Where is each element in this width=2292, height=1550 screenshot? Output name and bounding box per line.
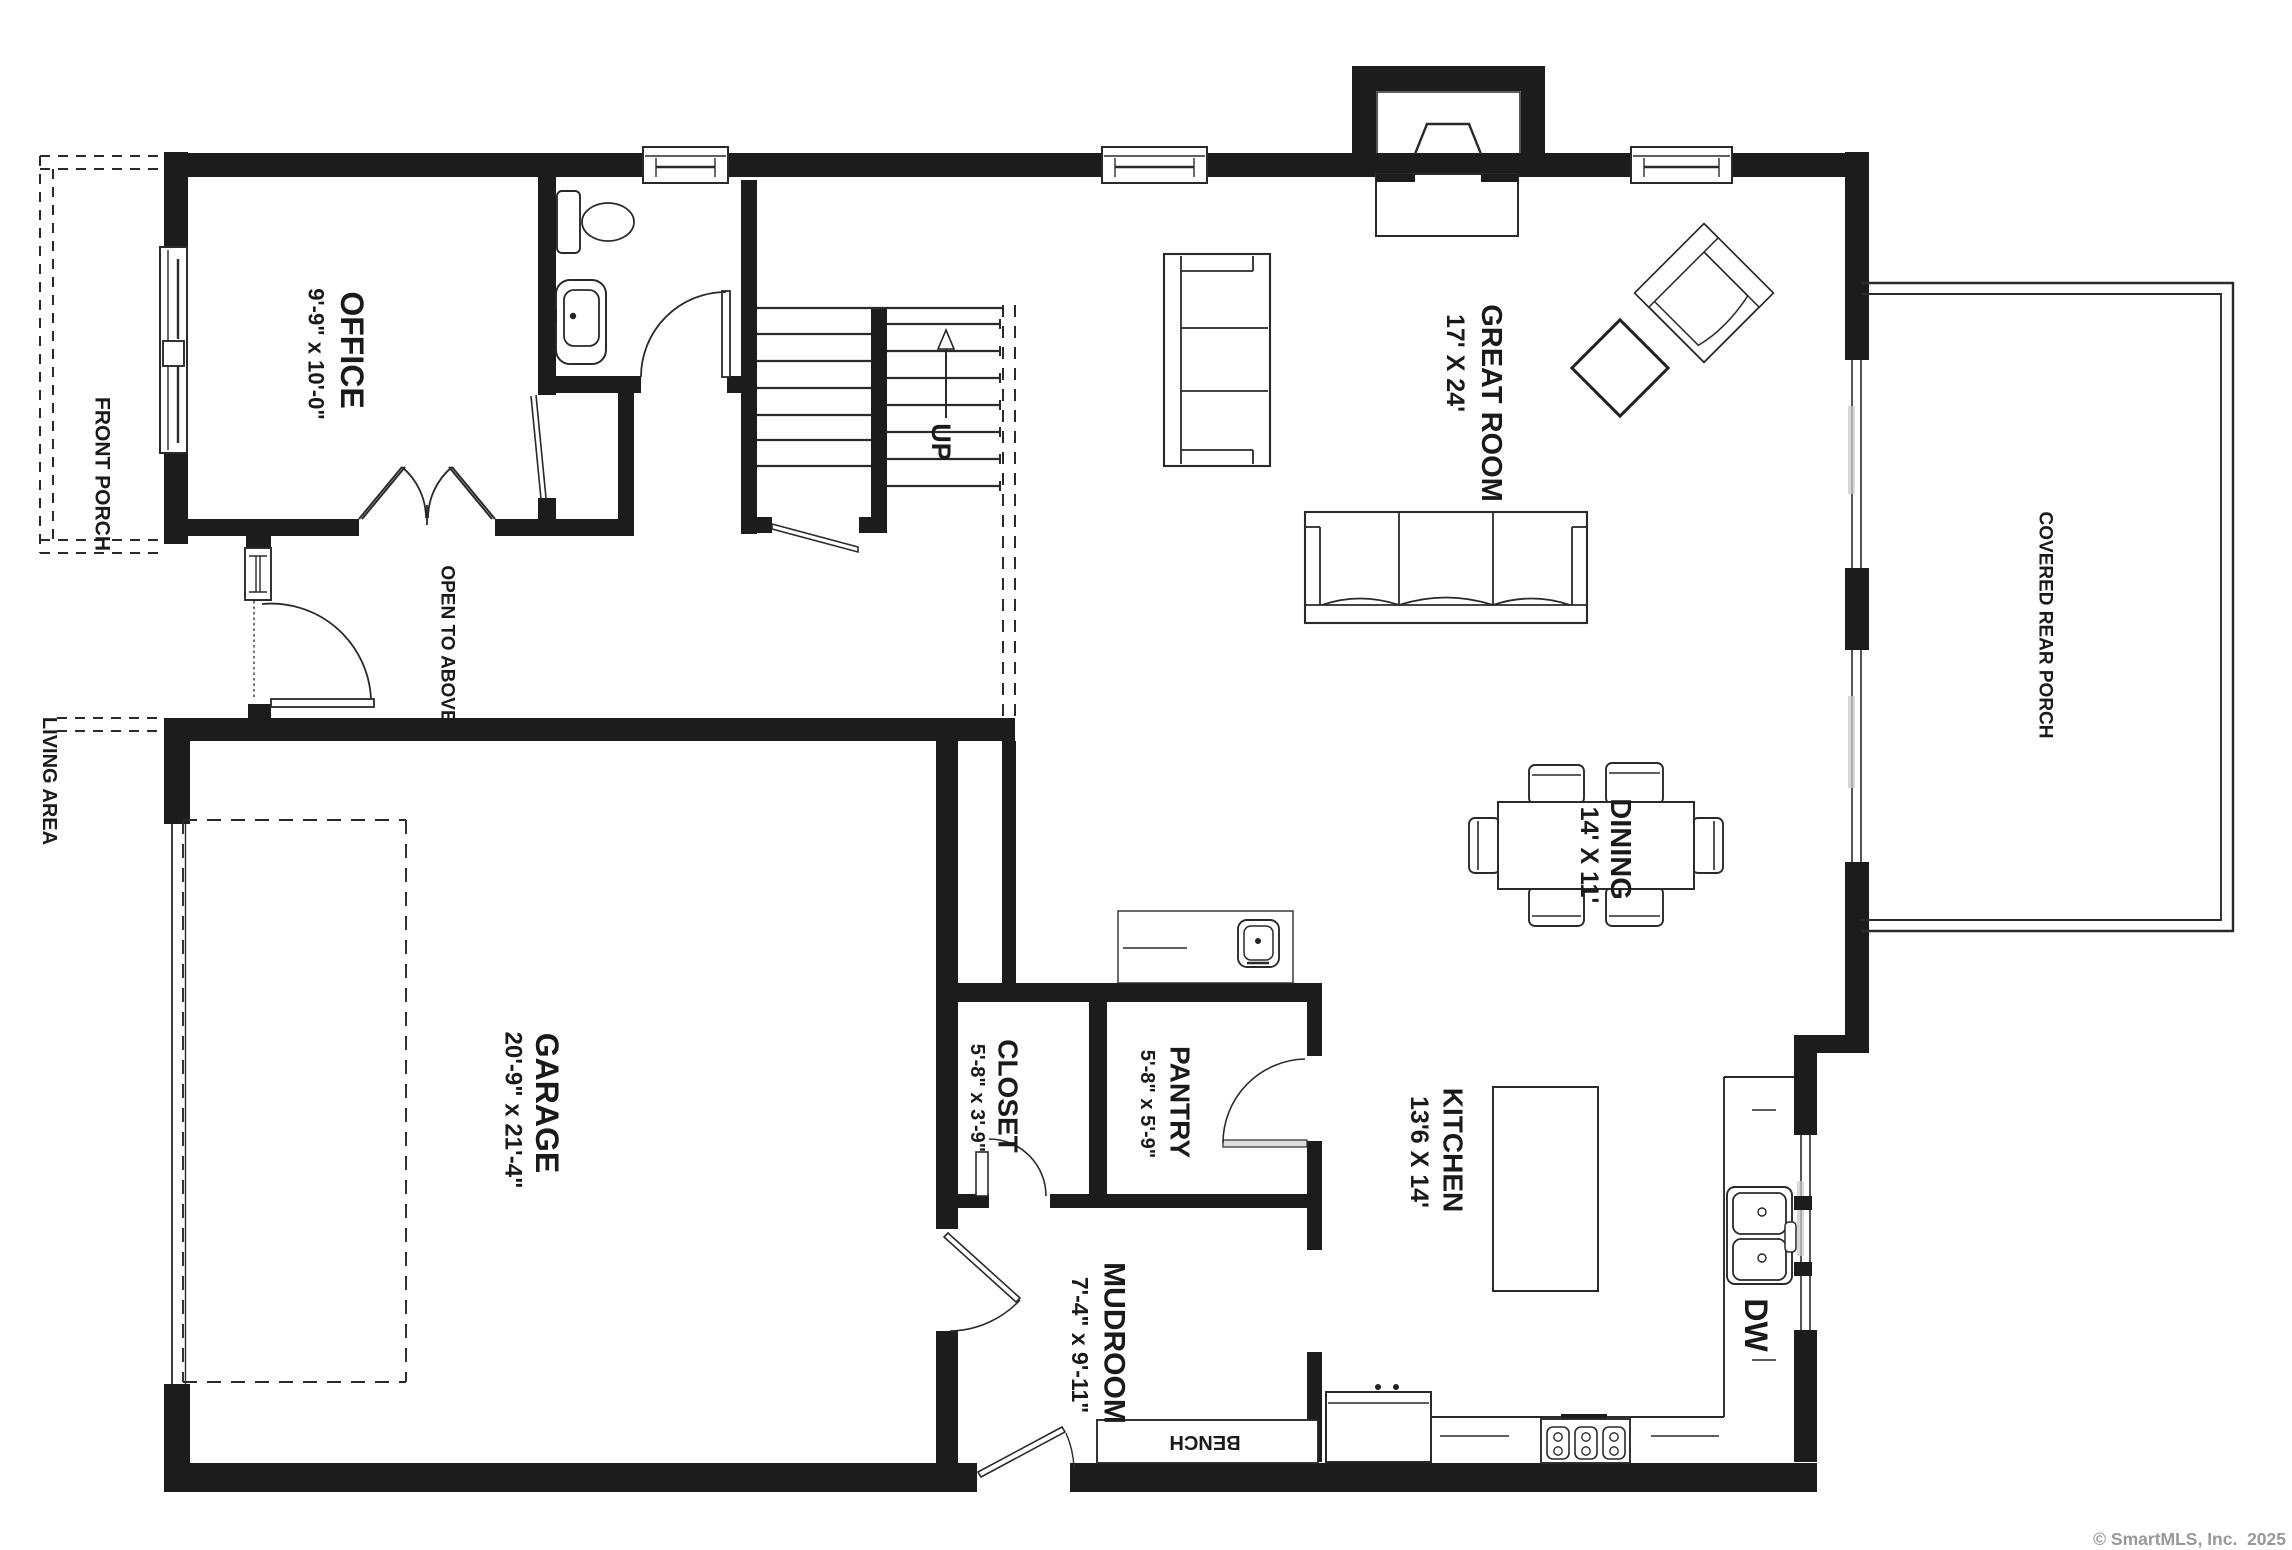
- svg-text:GREAT ROOM: GREAT ROOM: [1475, 304, 1507, 502]
- svg-text:DW: DW: [1738, 1298, 1774, 1352]
- svg-text:20'-9" x 21'-4": 20'-9" x 21'-4": [500, 1032, 527, 1189]
- svg-text:FRONT PORCH: FRONT PORCH: [91, 397, 114, 551]
- svg-text:17' X 24': 17' X 24': [1441, 314, 1469, 412]
- svg-text:PANTRY: PANTRY: [1165, 1046, 1196, 1158]
- svg-text:5'-8" x 5'-9": 5'-8" x 5'-9": [1136, 1050, 1158, 1159]
- svg-text:© SmartMLS, Inc. 2025: © SmartMLS, Inc. 2025: [2093, 1529, 2286, 1549]
- svg-text:UP: UP: [926, 423, 956, 461]
- svg-text:DINING: DINING: [1604, 798, 1636, 900]
- svg-text:OPEN TO ABOVE: OPEN TO ABOVE: [437, 565, 458, 722]
- svg-text:5'-8" x 3'-9": 5'-8" x 3'-9": [966, 1044, 988, 1153]
- svg-text:7'-4" x 9'-11": 7'-4" x 9'-11": [1067, 1277, 1093, 1413]
- svg-text:GARAGE: GARAGE: [529, 1033, 565, 1173]
- svg-text:13'6 X 14': 13'6 X 14': [1405, 1096, 1433, 1208]
- svg-text:MUDROOM: MUDROOM: [1098, 1262, 1131, 1424]
- svg-text:9'-9" x 10'-0": 9'-9" x 10'-0": [304, 288, 329, 420]
- svg-text:KITCHEN: KITCHEN: [1438, 1088, 1469, 1212]
- svg-text:OFFICE: OFFICE: [334, 291, 370, 408]
- svg-text:LIVING AREA: LIVING AREA: [38, 717, 60, 845]
- svg-text:14' X 11': 14' X 11': [1575, 807, 1603, 904]
- svg-text:COVERED REAR PORCH: COVERED REAR PORCH: [2035, 512, 2056, 739]
- svg-text:BENCH: BENCH: [1169, 1431, 1240, 1453]
- svg-text:CLOSET: CLOSET: [993, 1039, 1024, 1153]
